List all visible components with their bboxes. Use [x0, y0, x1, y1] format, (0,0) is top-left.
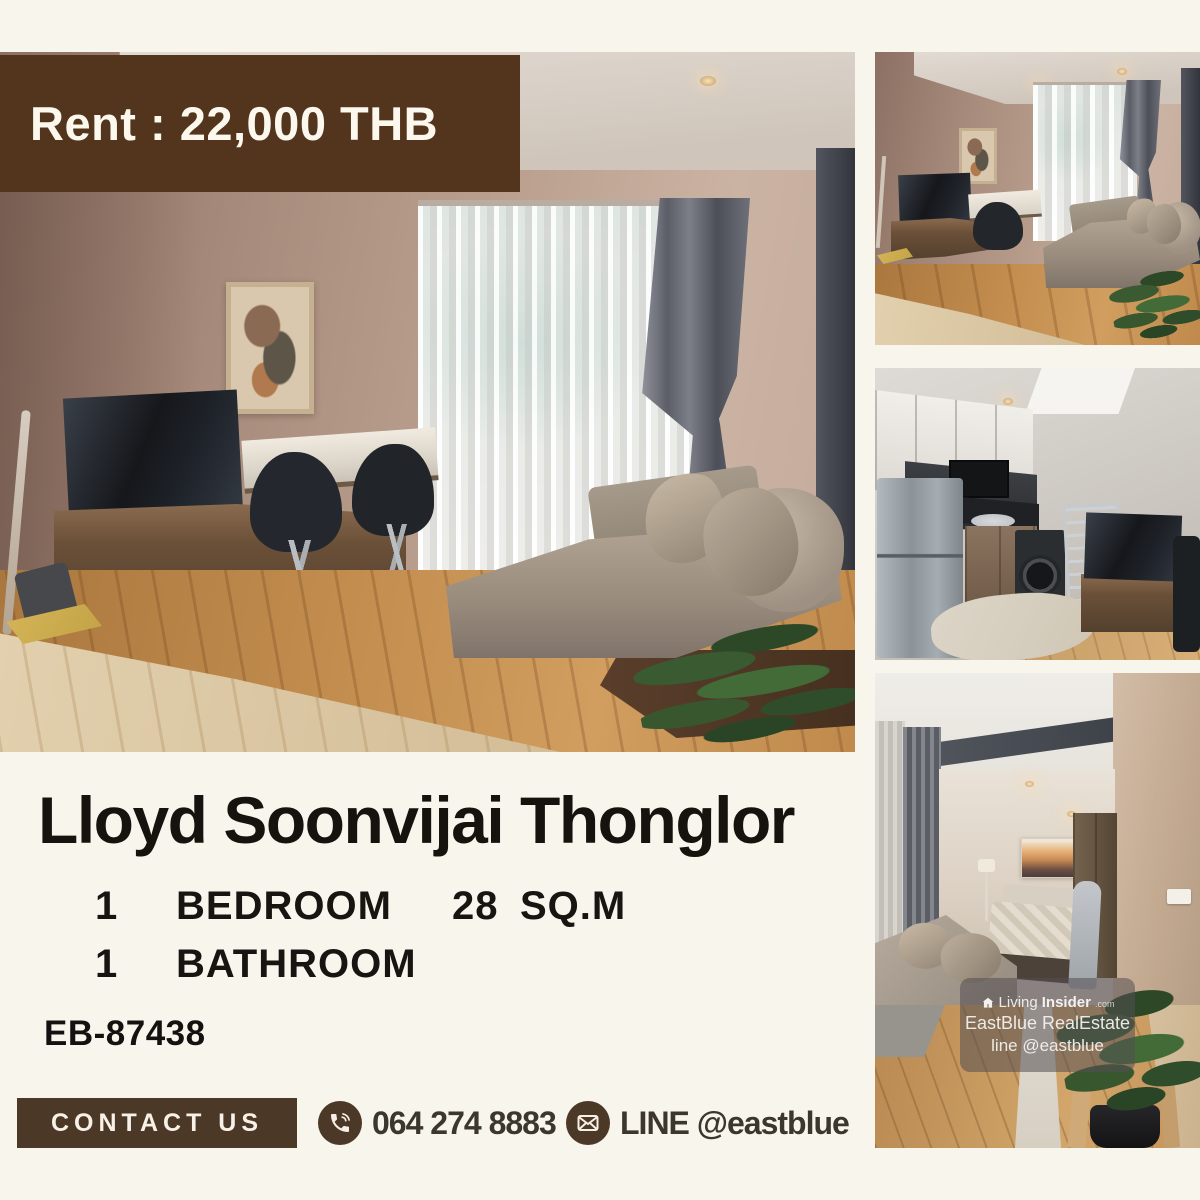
contact-us-button[interactable]: CONTACT US — [17, 1098, 297, 1148]
bathroom-count: 1 — [95, 942, 118, 987]
watermark-brand-row: LivingInsider.com — [960, 994, 1135, 1011]
broom — [876, 156, 886, 248]
photo-bedroom: LivingInsider.com EastBlue RealEstate li… — [875, 673, 1200, 1148]
photo-kitchen — [875, 368, 1200, 660]
sunset-painting — [1021, 838, 1075, 878]
envelope-icon — [576, 1111, 600, 1135]
black-chair — [1173, 536, 1200, 652]
area-value: 28 — [452, 884, 499, 929]
watermark-agency: EastBlue RealEstate — [960, 1013, 1135, 1034]
bathroom-label: BATHROOM — [176, 942, 417, 987]
brand-insider: Insider — [1042, 994, 1091, 1011]
photo-living-room-angle — [875, 52, 1200, 345]
phone-number[interactable]: 064 274 8883 — [372, 1101, 556, 1145]
floor-lamp-shade — [978, 859, 995, 872]
ceiling-light — [1117, 68, 1127, 75]
phone-icon[interactable] — [318, 1101, 362, 1145]
watermark-line-handle: line @eastblue — [960, 1036, 1135, 1056]
foreground-wall — [1113, 673, 1200, 1008]
bedroom-label: BEDROOM — [176, 884, 392, 929]
tv-screen — [63, 390, 243, 522]
skylight — [1025, 368, 1135, 414]
watermark: LivingInsider.com EastBlue RealEstate li… — [960, 978, 1135, 1072]
abstract-painting — [226, 282, 314, 414]
floor-lamp-pole — [985, 869, 988, 921]
phone-handset-icon — [328, 1111, 352, 1135]
brand-living: Living — [999, 994, 1038, 1011]
ceiling-light — [1025, 781, 1034, 787]
price-banner: Rent : 22,000 THB — [0, 55, 520, 192]
line-id[interactable]: LINE @eastblue — [620, 1101, 849, 1145]
tv-screen — [1084, 512, 1182, 581]
contact-us-label: CONTACT US — [51, 1109, 263, 1138]
plant — [1104, 255, 1200, 345]
bedroom-count: 1 — [95, 884, 118, 929]
house-logo-icon — [981, 996, 995, 1010]
price-text: Rent : 22,000 THB — [30, 96, 438, 151]
reference-code: EB-87438 — [44, 1014, 206, 1054]
real-estate-flyer: Rent : 22,000 THB — [0, 0, 1200, 1200]
brand-domain: .com — [1095, 999, 1115, 1011]
line-contact-icon[interactable] — [566, 1101, 610, 1145]
area-label: SQ.M — [520, 884, 626, 929]
ceiling-light — [1003, 398, 1013, 405]
ceiling-light — [700, 76, 716, 86]
ironing-board — [1068, 880, 1102, 989]
light-switch — [1167, 889, 1191, 904]
listing-title: Lloyd Soonvijai Thonglor — [38, 782, 794, 858]
